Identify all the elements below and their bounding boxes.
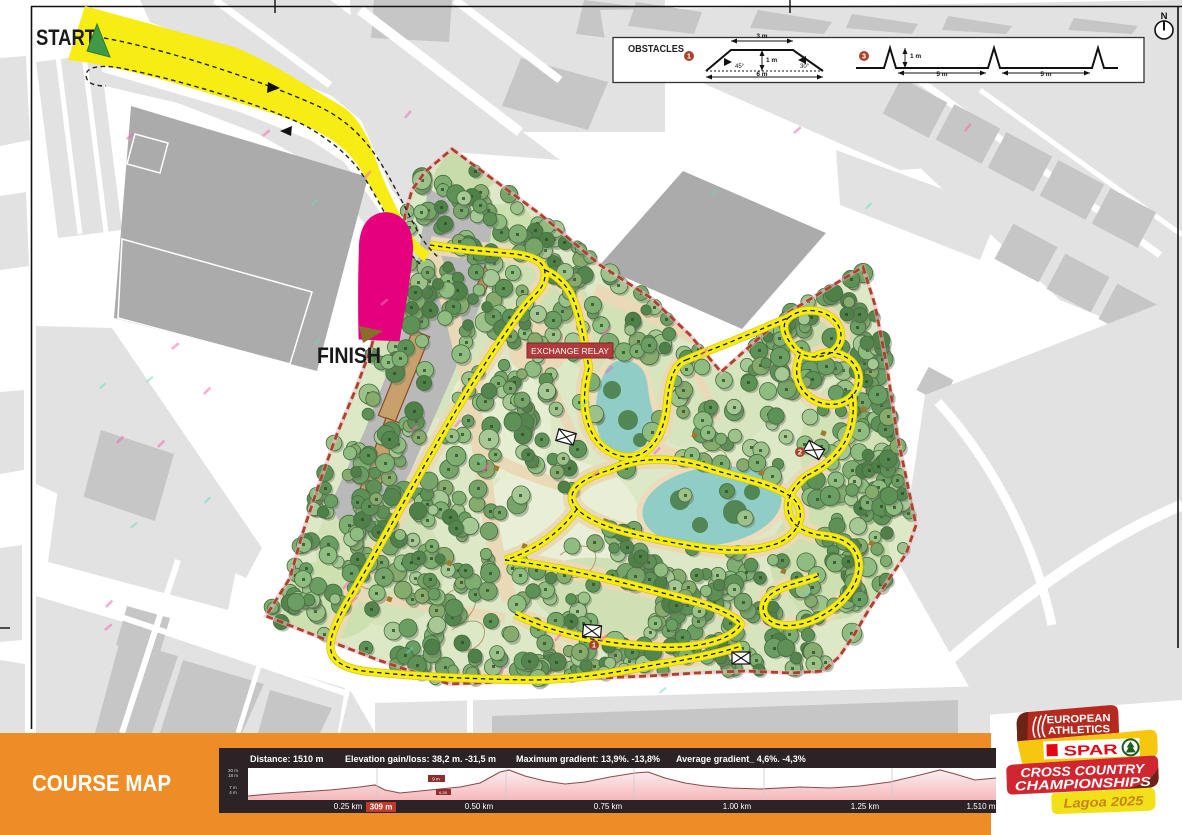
svg-text:3 m: 3 m — [756, 33, 767, 40]
svg-text:4 m: 4 m — [229, 790, 237, 795]
svg-text:1 m: 1 m — [910, 53, 921, 60]
svg-text:Distance: 1510 m: Distance: 1510 m — [250, 754, 324, 764]
svg-text:5 m: 5 m — [1040, 71, 1051, 78]
svg-text:1.510 m: 1.510 m — [967, 802, 996, 811]
svg-text:COURSE MAP: COURSE MAP — [32, 770, 171, 796]
svg-text:9 m: 9 m — [432, 777, 440, 782]
svg-text:1: 1 — [687, 52, 691, 61]
svg-text:1.25 km: 1.25 km — [851, 802, 880, 811]
svg-text:6,35: 6,35 — [439, 790, 448, 795]
svg-text:45°: 45° — [735, 64, 745, 70]
svg-text:6 m: 6 m — [756, 71, 767, 78]
svg-text:Lagoa 2025: Lagoa 2025 — [1063, 793, 1144, 811]
svg-text:START: START — [36, 25, 96, 50]
svg-text:OBSTACLES: OBSTACLES — [628, 44, 684, 55]
svg-text:30°: 30° — [800, 64, 810, 70]
svg-text:0.75 km: 0.75 km — [594, 802, 623, 811]
svg-text:EXCHANGE RELAY: EXCHANGE RELAY — [531, 346, 609, 356]
svg-text:0.50 km: 0.50 km — [465, 802, 494, 811]
svg-text:SPAR: SPAR — [1063, 741, 1118, 759]
svg-text:3: 3 — [862, 52, 866, 61]
svg-text:2: 2 — [798, 448, 802, 457]
svg-text:309 m: 309 m — [370, 803, 393, 812]
svg-text:1: 1 — [592, 641, 596, 650]
svg-text:Average gradient_ 4,6%. -4,3%: Average gradient_ 4,6%. -4,3% — [676, 754, 806, 764]
svg-text:18 m: 18 m — [228, 773, 238, 778]
svg-text:Maximum gradient: 13,9%. -13,8: Maximum gradient: 13,9%. -13,8% — [516, 754, 660, 764]
svg-text:FINISH: FINISH — [317, 343, 381, 368]
svg-text:0.25 km: 0.25 km — [334, 802, 363, 811]
svg-text:1 m: 1 m — [766, 57, 777, 64]
svg-text:5 m: 5 m — [936, 71, 947, 78]
svg-text:1.00 km: 1.00 km — [723, 802, 752, 811]
svg-text:Elevation gain/loss: 38,2 m. -: Elevation gain/loss: 38,2 m. -31,5 m — [345, 754, 496, 764]
